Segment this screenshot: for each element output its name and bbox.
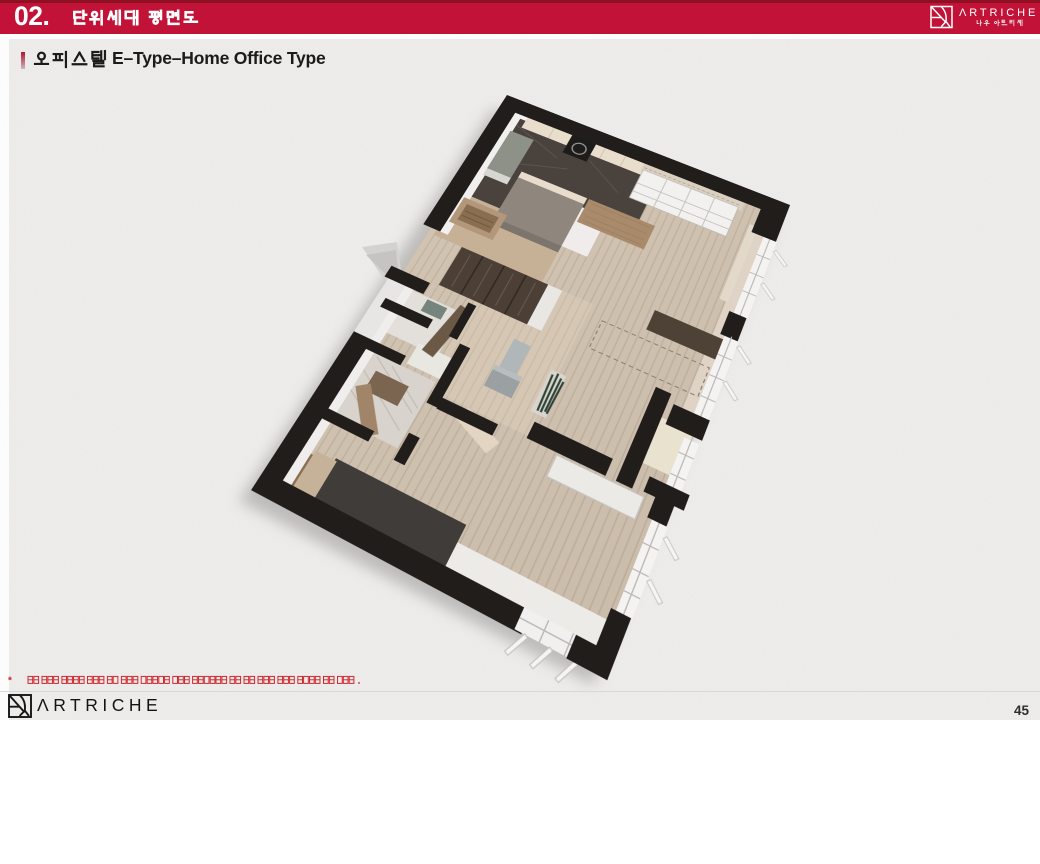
svg-text:*: * [8, 676, 12, 687]
